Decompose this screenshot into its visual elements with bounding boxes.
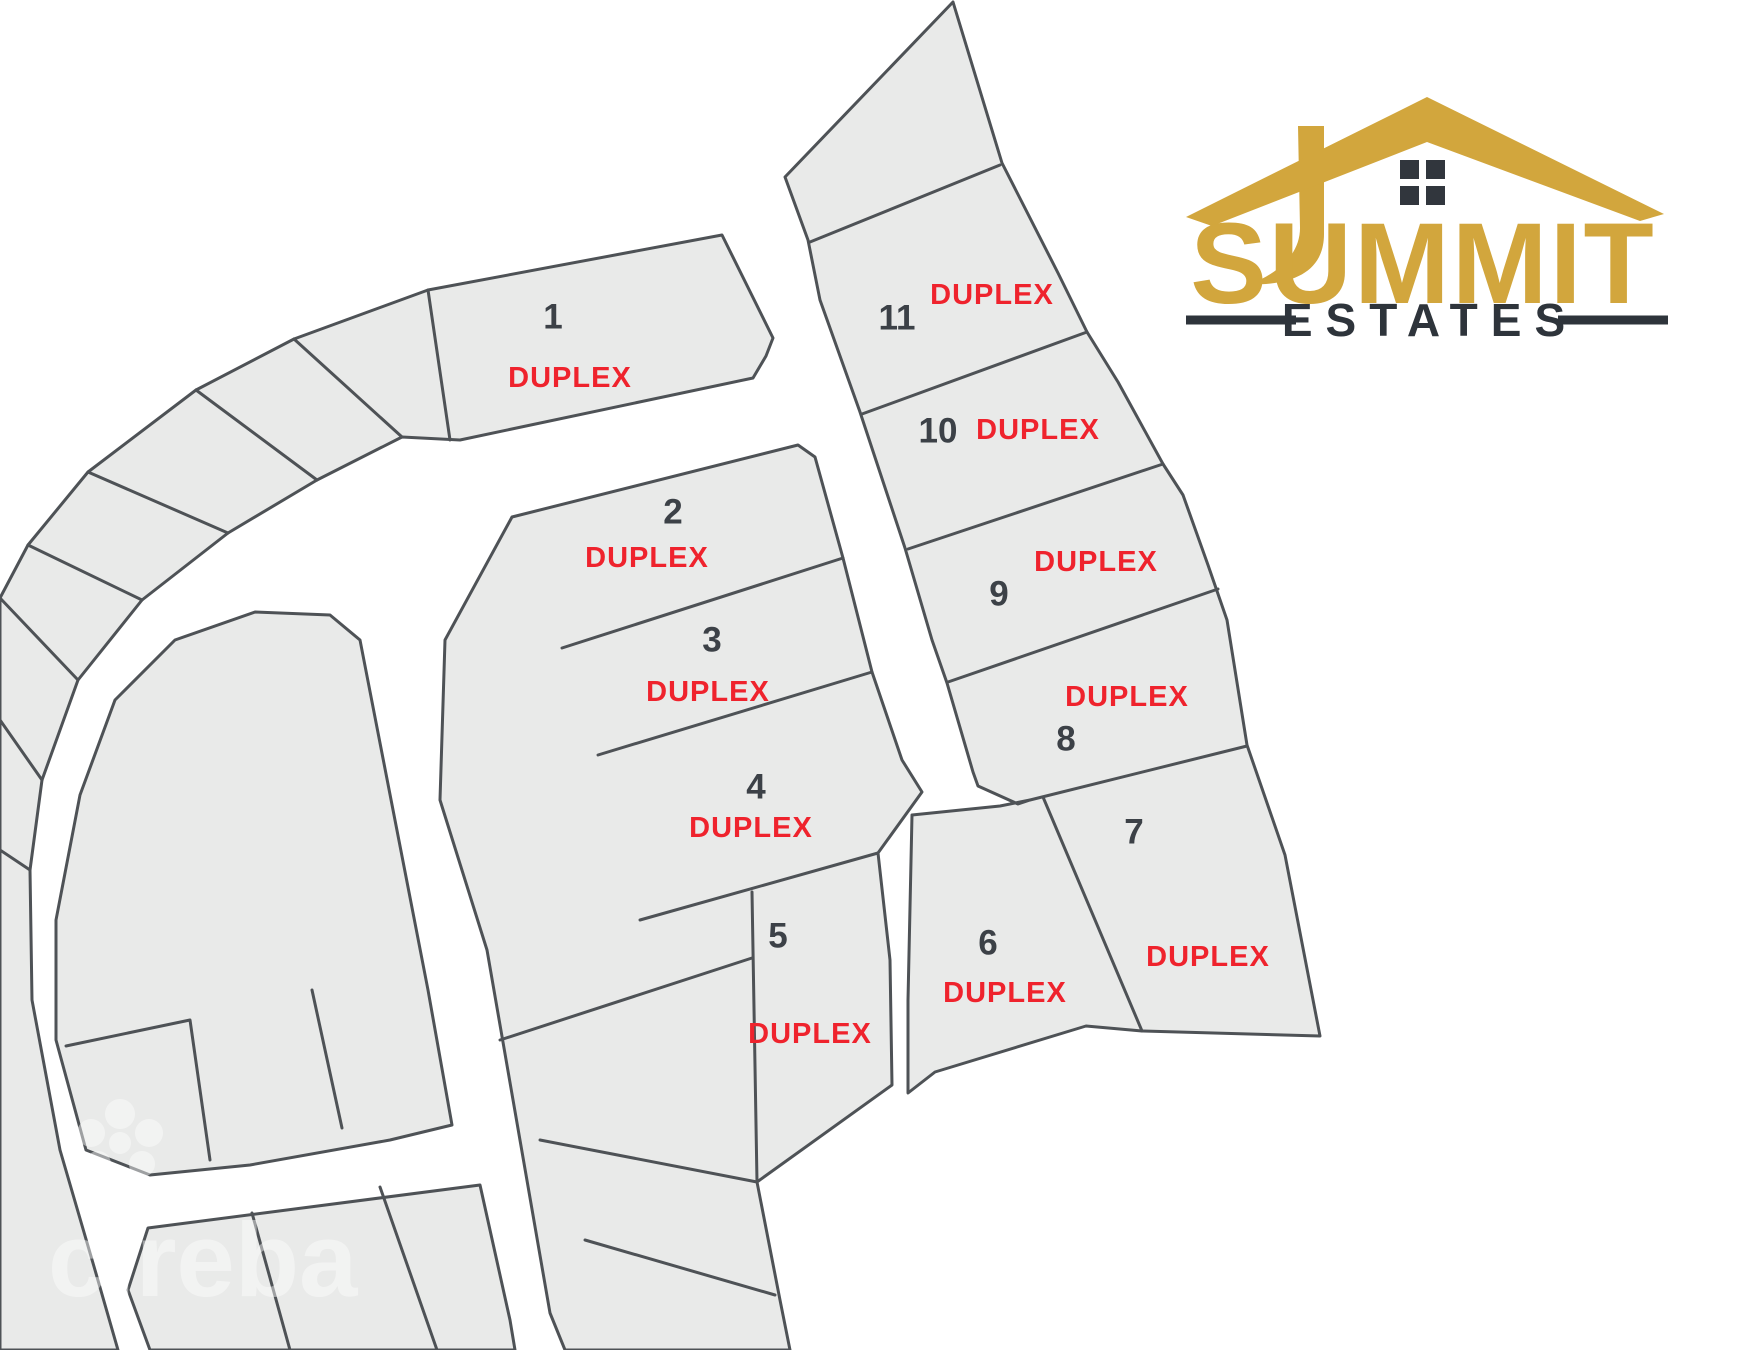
- middle-block: [440, 445, 922, 1350]
- lot-5-duplex-label: DUPLEX: [748, 1018, 872, 1050]
- lot-3-number: 3: [702, 621, 721, 660]
- lot-9-number: 9: [989, 575, 1008, 614]
- lot-7-number: 7: [1124, 813, 1143, 852]
- plat-map: 1DUPLEX2DUPLEX3DUPLEX4DUPLEX5DUPLEX6DUPL…: [0, 0, 1747, 1350]
- lot-11-duplex-label: DUPLEX: [930, 279, 1054, 311]
- lot-9-duplex-label: DUPLEX: [1034, 546, 1158, 578]
- lot-8-number: 8: [1056, 720, 1075, 759]
- plat-map-page: 1DUPLEX2DUPLEX3DUPLEX4DUPLEX5DUPLEX6DUPL…: [0, 0, 1747, 1350]
- lot-4-number: 4: [746, 768, 766, 807]
- logo-subtitle: ESTATES: [1282, 294, 1578, 346]
- lot-7-duplex-label: DUPLEX: [1146, 941, 1270, 973]
- lot-4-duplex-label: DUPLEX: [689, 812, 813, 844]
- lot-3-duplex-label: DUPLEX: [646, 676, 770, 708]
- lot-5-number: 5: [768, 917, 787, 956]
- island-block: [56, 612, 452, 1175]
- lot-2-duplex-label: DUPLEX: [585, 542, 709, 574]
- lot-10-number: 10: [919, 412, 958, 451]
- lot-2-number: 2: [663, 493, 682, 532]
- lot-11-number: 11: [879, 299, 916, 338]
- watermark-text: cireba: [48, 1202, 359, 1319]
- lot-1-duplex-label: DUPLEX: [508, 362, 632, 394]
- lot-6-number: 6: [978, 924, 997, 963]
- logo-window-icon: [1400, 160, 1445, 205]
- lot-1-number: 1: [543, 298, 562, 337]
- lot-8-duplex-label: DUPLEX: [1065, 681, 1189, 713]
- lot-10-duplex-label: DUPLEX: [976, 414, 1100, 446]
- lot-6-duplex-label: DUPLEX: [943, 977, 1067, 1009]
- summit-estates-logo: SUMMIT ESTATES: [1186, 97, 1668, 346]
